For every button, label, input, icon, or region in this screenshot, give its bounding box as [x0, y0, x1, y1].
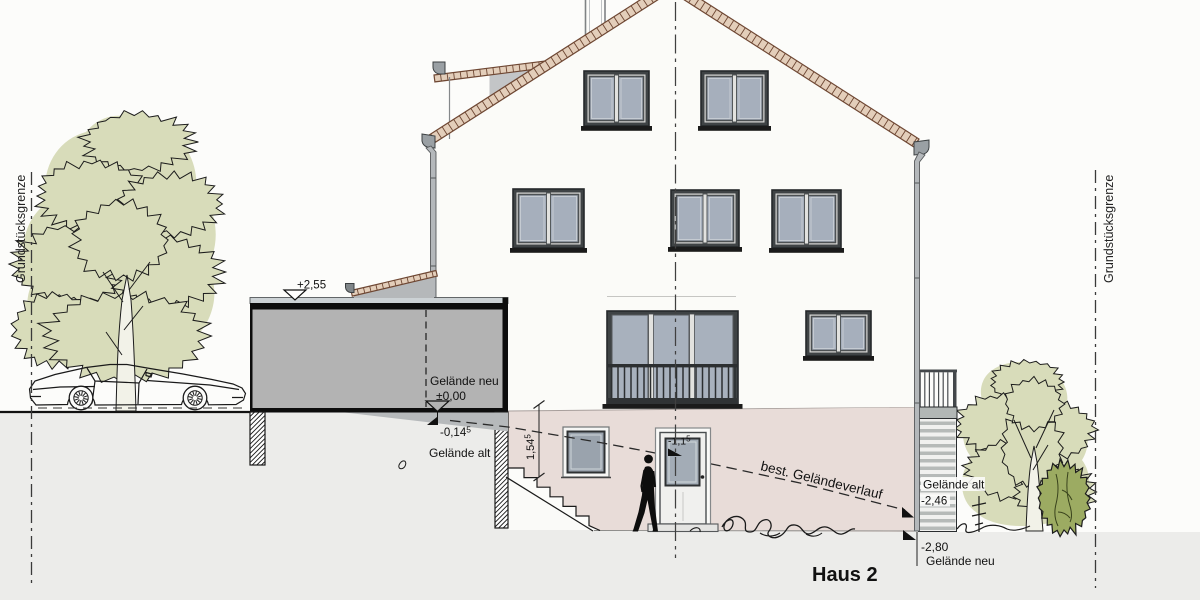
svg-text:Gelände alt: Gelände alt	[923, 478, 985, 492]
svg-text:-2,80: -2,80	[921, 540, 949, 554]
svg-text:Gelände neu: Gelände neu	[926, 554, 995, 568]
svg-text:Gelände neu: Gelände neu	[430, 374, 499, 388]
svg-text:Haus 2: Haus 2	[812, 564, 878, 586]
svg-text:Grundstücksgrenze: Grundstücksgrenze	[1102, 175, 1116, 283]
svg-text:-2,46: -2,46	[921, 496, 947, 508]
svg-text:Grundstücksgrenze: Grundstücksgrenze	[14, 175, 28, 283]
svg-text:Gelände alt: Gelände alt	[429, 446, 491, 460]
